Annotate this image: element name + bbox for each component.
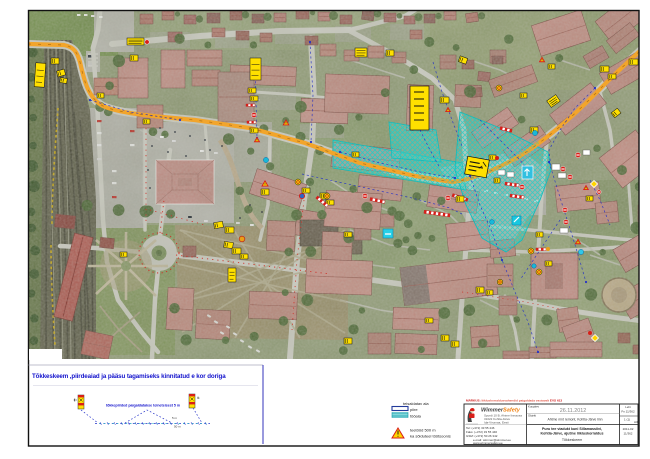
svg-text:tk: tk (197, 396, 200, 400)
svg-text:Fn 11/362: Fn 11/362 (621, 410, 635, 414)
svg-text:Leht: Leht (625, 405, 631, 409)
svg-text:Tõkkeskeem: Tõkkeskeem (562, 438, 582, 442)
svg-text:tõkkepiirded paigaldatakse tei: tõkkepiirded paigaldatakse teineteisest … (106, 404, 180, 408)
svg-text:teetööd 500 m: teetööd 500 m (410, 428, 436, 433)
svg-text:MÄRKUS: liikluskorraldusvahend: MÄRKUS: liikluskorraldusvahendid paigald… (466, 399, 562, 403)
svg-text:5 m: 5 m (172, 416, 178, 420)
svg-text:50 m: 50 m (174, 425, 181, 429)
svg-text:Puru tee viadukt kuni Sillamas: Puru tee viadukt kuni Sillamassiivi, (542, 427, 602, 431)
svg-text:Objekt: Objekt (528, 414, 536, 418)
svg-text:Kohtla-Järve, ajutine liiklusk: Kohtla-Järve, ajutine liikluskorraldus (541, 432, 604, 436)
svg-text:11/362: 11/362 (624, 432, 633, 436)
svg-text:tööala: tööala (410, 414, 422, 419)
svg-text:Kuupäev: Kuupäev (528, 405, 540, 409)
svg-text:teisaldatav ala: teisaldatav ala (403, 401, 429, 406)
svg-text:A3: A3 (634, 420, 638, 424)
svg-text:2011-02: 2011-02 (623, 427, 634, 431)
svg-text:Ahtme mnt remont, Kohtla-Järve: Ahtme mnt remont, Kohtla-Järve linn (547, 418, 602, 422)
svg-text:1 (1): 1 (1) (624, 418, 630, 422)
svg-text:Ida-Virumaa, Eesti: Ida-Virumaa, Eesti (484, 421, 509, 425)
svg-text:www.wimmersafety.ee: www.wimmersafety.ee (473, 441, 503, 445)
svg-text:26.11.2012: 26.11.2012 (560, 408, 587, 414)
svg-text:Tõkkeskeem ,piirdeaiad ja pääs: Tõkkeskeem ,piirdeaiad ja pääsu tagamise… (32, 373, 226, 380)
svg-text:piire: piire (410, 407, 418, 412)
svg-text:ka sõiduteel töötsoonis: ka sõiduteel töötsoonis (410, 434, 451, 439)
